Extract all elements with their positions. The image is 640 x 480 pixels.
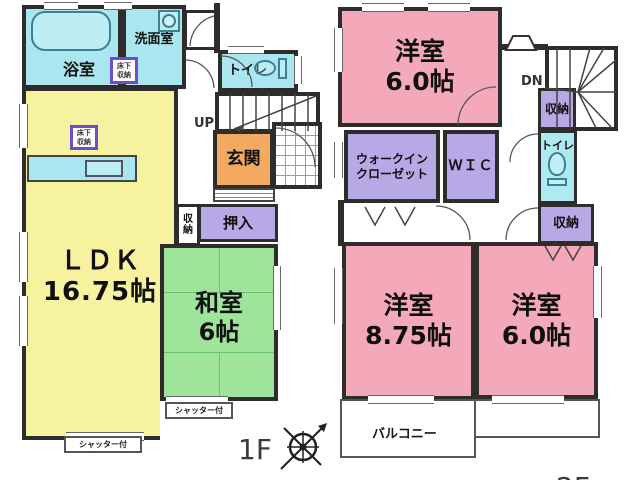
toilet-tank-icon-2f — [547, 178, 567, 186]
walkin-closet-room: ウォークイン クローゼット — [344, 130, 440, 203]
entrance-room: 玄関 — [213, 130, 274, 189]
bedroom-6-top: 洋室 6.0帖 — [338, 7, 502, 127]
window — [19, 296, 28, 346]
window — [19, 232, 28, 282]
tatami-line — [219, 248, 220, 292]
floor1-text: 1F — [238, 433, 272, 466]
window — [368, 395, 434, 404]
storage-2f-top-label: 収納 — [545, 102, 569, 116]
ldk-label: ＬＤＫ 16.75帖 — [43, 246, 157, 308]
hall-right-wall — [214, 3, 220, 53]
hall-closet — [184, 10, 218, 50]
oshiire-label: 押入 — [223, 214, 253, 232]
window — [334, 142, 343, 178]
up-label: UP — [194, 101, 214, 131]
wic-label: ＷＩＣ — [449, 158, 494, 175]
tatami-line — [219, 352, 220, 397]
dn-label: DN — [521, 59, 543, 89]
door-arc — [510, 134, 538, 162]
up-text: UP — [194, 116, 214, 131]
corridor-left-wall — [338, 200, 344, 246]
shutter-label-1: シャッター付 — [175, 405, 223, 416]
window — [44, 2, 78, 10]
window — [334, 268, 343, 324]
window — [294, 56, 302, 84]
underfloor-storage-label-2: 床下 収納 — [77, 129, 91, 145]
ldk-room: ＬＤＫ 16.75帖 — [22, 87, 178, 440]
entrance-label: 玄関 — [227, 149, 261, 169]
toilet-bowl-icon-1f — [254, 60, 276, 76]
window — [593, 266, 602, 318]
storage-room-1f: 収 納 — [176, 204, 200, 246]
entrance-step — [213, 188, 275, 202]
floorplan-canvas: ＬＤＫ 16.75帖 浴室 洗面室 床下 収納 床下 収納 トイレ UP 玄関 — [0, 0, 640, 480]
door-arc — [186, 60, 214, 88]
oshiire-closet: 押入 — [198, 204, 278, 242]
underfloor-storage-box-1: 床下 収納 — [110, 57, 138, 84]
underfloor-storage-label-1: 床下 収納 — [117, 62, 131, 78]
window — [273, 266, 281, 330]
shutter-box-ldk: シャッター付 — [64, 436, 142, 453]
wic-room: ＷＩＣ — [443, 130, 499, 203]
balcony-text: バルコニー — [372, 427, 437, 442]
japanese-room-label: 和室 6帖 — [195, 289, 243, 347]
floor2-label: 2F — [556, 438, 590, 480]
toilet-tank-icon-1f — [278, 58, 287, 79]
window — [428, 3, 470, 12]
window — [228, 46, 264, 54]
underfloor-storage-box-2: 床下 収納 — [70, 125, 98, 150]
bedroom-6-right-label: 洋室 6.0帖 — [502, 291, 571, 351]
balcony-right — [474, 399, 600, 438]
bedroom-875: 洋室 8.75帖 — [342, 242, 475, 400]
window — [104, 2, 132, 10]
door-arc — [506, 208, 538, 240]
dn-text: DN — [521, 74, 543, 89]
window — [362, 3, 404, 12]
balcony-label: バルコニー — [372, 408, 437, 442]
toilet-bowl-icon-2f — [548, 152, 566, 176]
bedroom-875-label: 洋室 8.75帖 — [365, 291, 452, 351]
shutter-box-washitsu: シャッター付 — [165, 402, 233, 419]
toilet-label-2f: トイレ — [541, 139, 574, 152]
porch-tiles — [272, 122, 322, 189]
compass-icon — [281, 423, 327, 469]
bedroom-6-right: 洋室 6.0帖 — [475, 242, 598, 399]
bath-label: 浴室 — [63, 60, 95, 79]
hall2-top-wall — [498, 44, 548, 50]
storage-2f-top: 収納 — [538, 88, 576, 130]
washroom-label: 洗面室 — [134, 32, 173, 48]
floor1-label: 1F — [238, 400, 272, 466]
storage-2f-bottom: 収納 — [538, 204, 594, 244]
window — [19, 104, 28, 148]
kitchen-sink-icon — [85, 160, 123, 177]
floor2-text: 2F — [556, 471, 590, 480]
window — [334, 28, 343, 72]
bathtub-icon — [31, 11, 111, 51]
japanese-room: 和室 6帖 — [160, 244, 278, 401]
door-arc — [436, 206, 470, 240]
walkin-closet-label: ウォークイン クローゼット — [356, 152, 428, 181]
storage-label-1f: 収 納 — [183, 214, 193, 236]
window — [492, 395, 564, 404]
shutter-label-2: シャッター付 — [79, 439, 127, 450]
storage-2f-bottom-label: 収納 — [553, 216, 579, 232]
washing-machine-drum-icon — [162, 14, 176, 28]
bedroom-6-top-label: 洋室 6.0帖 — [385, 37, 454, 97]
